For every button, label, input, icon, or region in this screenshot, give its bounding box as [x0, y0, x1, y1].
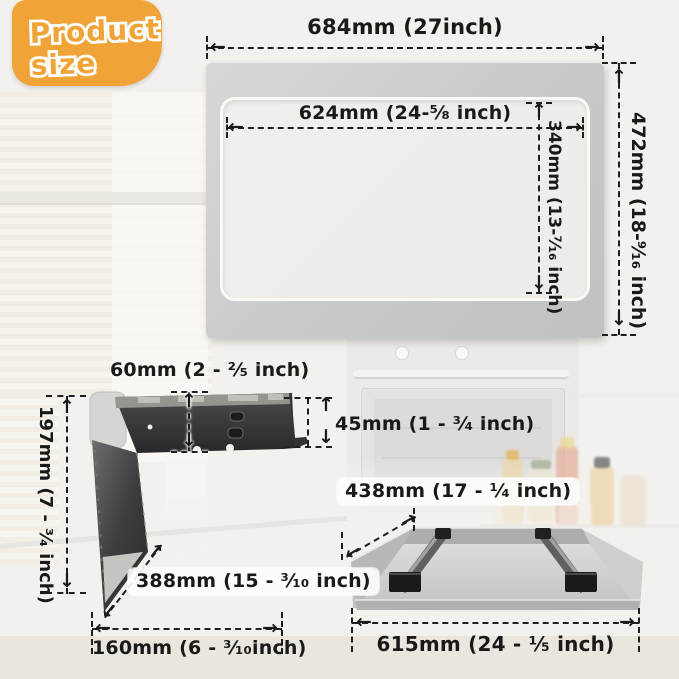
- vent-row-top: [222, 68, 588, 96]
- product-size-diagram: Product size 684mm (27inch) ← → 624mm (2…: [0, 0, 679, 679]
- dim-bracket-depth-label: 388mm (15 - ³⁄₁₀ inch): [128, 568, 379, 595]
- badge-text: Product size: [12, 0, 162, 86]
- arrow-left-icon: ←: [95, 619, 111, 638]
- trim-kit-opening: [223, 100, 587, 298]
- arrow-left-icon: ←: [210, 38, 226, 57]
- dim-cap: [602, 62, 636, 64]
- dim-cap: [206, 36, 208, 59]
- dim-cap: [602, 36, 604, 59]
- dim-bracket-side-line: [66, 396, 68, 594]
- window-blinds: [0, 92, 212, 394]
- arrow-left-icon: ←: [228, 118, 244, 137]
- dim-frame-width-line: [208, 47, 602, 49]
- arrow-up-icon: ↑: [611, 68, 627, 87]
- arrow-down-icon: ↓: [318, 428, 334, 447]
- arrow-right-icon: →: [262, 619, 278, 638]
- dim-tray-depth-label: 438mm (17 - ¹⁄₄ inch): [337, 478, 579, 505]
- dim-opening-width-label: 624mm (24-⁵⁄₈ inch): [227, 103, 583, 124]
- dim-cap: [602, 334, 636, 336]
- arrow-down-icon: ↓: [611, 310, 627, 329]
- dim-bracket-flange-label: 45mm (1 - ³⁄₄ inch): [335, 414, 534, 435]
- arrow-left-icon: ←: [356, 613, 372, 632]
- dim-bracket-width-line: [92, 628, 282, 630]
- dim-bracket-width-label: 160mm (6 - ³⁄₁₀inch): [92, 638, 282, 659]
- dim-opening-height-label: 340mm (13-⁷⁄₁₆ inch): [545, 120, 562, 314]
- dim-frame-height-line: [618, 63, 620, 335]
- arrow-right-icon: →: [619, 613, 635, 632]
- dim-opening-width-line: [228, 127, 582, 129]
- jar-lid: [531, 460, 551, 469]
- dim-cap: [582, 117, 584, 138]
- dim-tray-width-line: [352, 622, 639, 624]
- dim-bracket-side-label: 197mm (7 - ³⁄₄ inch): [36, 406, 54, 604]
- product-size-badge: Product size: [12, 0, 162, 86]
- dim-tray-width-label: 615mm (24 - ¹⁄₅ inch): [352, 633, 639, 655]
- bottle-cap: [506, 450, 519, 460]
- dim-frame-width-label: 684mm (27inch): [206, 16, 604, 39]
- dim-frame-height-label: 472mm (18-⁹⁄₁₆ inch): [628, 112, 647, 329]
- vent-row-bottom: [222, 304, 588, 332]
- dim-bracket-top-label: 60mm (2 - ²⁄₅ inch): [110, 360, 290, 381]
- arrow-up-icon: ↑: [59, 398, 75, 417]
- bottle-cap: [594, 457, 610, 468]
- oven-handle: [353, 370, 569, 379]
- badge-line1: Product: [29, 12, 161, 50]
- arrow-up-icon: ↑: [531, 102, 547, 121]
- dim-bracket-flange-line: [307, 398, 309, 446]
- arrow-down-icon: ↓: [59, 572, 75, 591]
- oven-knob-right: [455, 346, 469, 360]
- arrow-up-icon: ↑: [181, 392, 197, 411]
- arrow-right-icon: →: [566, 118, 582, 137]
- dim-opening-height-line: [538, 104, 540, 293]
- wall-shelf-left: [0, 192, 212, 205]
- arrow-down-icon: ↓: [181, 431, 197, 450]
- arrow-up-icon: ↑: [318, 396, 334, 415]
- badge-line2: size: [30, 47, 97, 82]
- arrow-right-icon: →: [584, 38, 600, 57]
- bottle-cap: [560, 437, 574, 448]
- dim-cap: [171, 451, 208, 453]
- base-tray: [338, 498, 648, 616]
- wall-shelf-right: [562, 393, 679, 398]
- oven-knob-left: [395, 346, 409, 360]
